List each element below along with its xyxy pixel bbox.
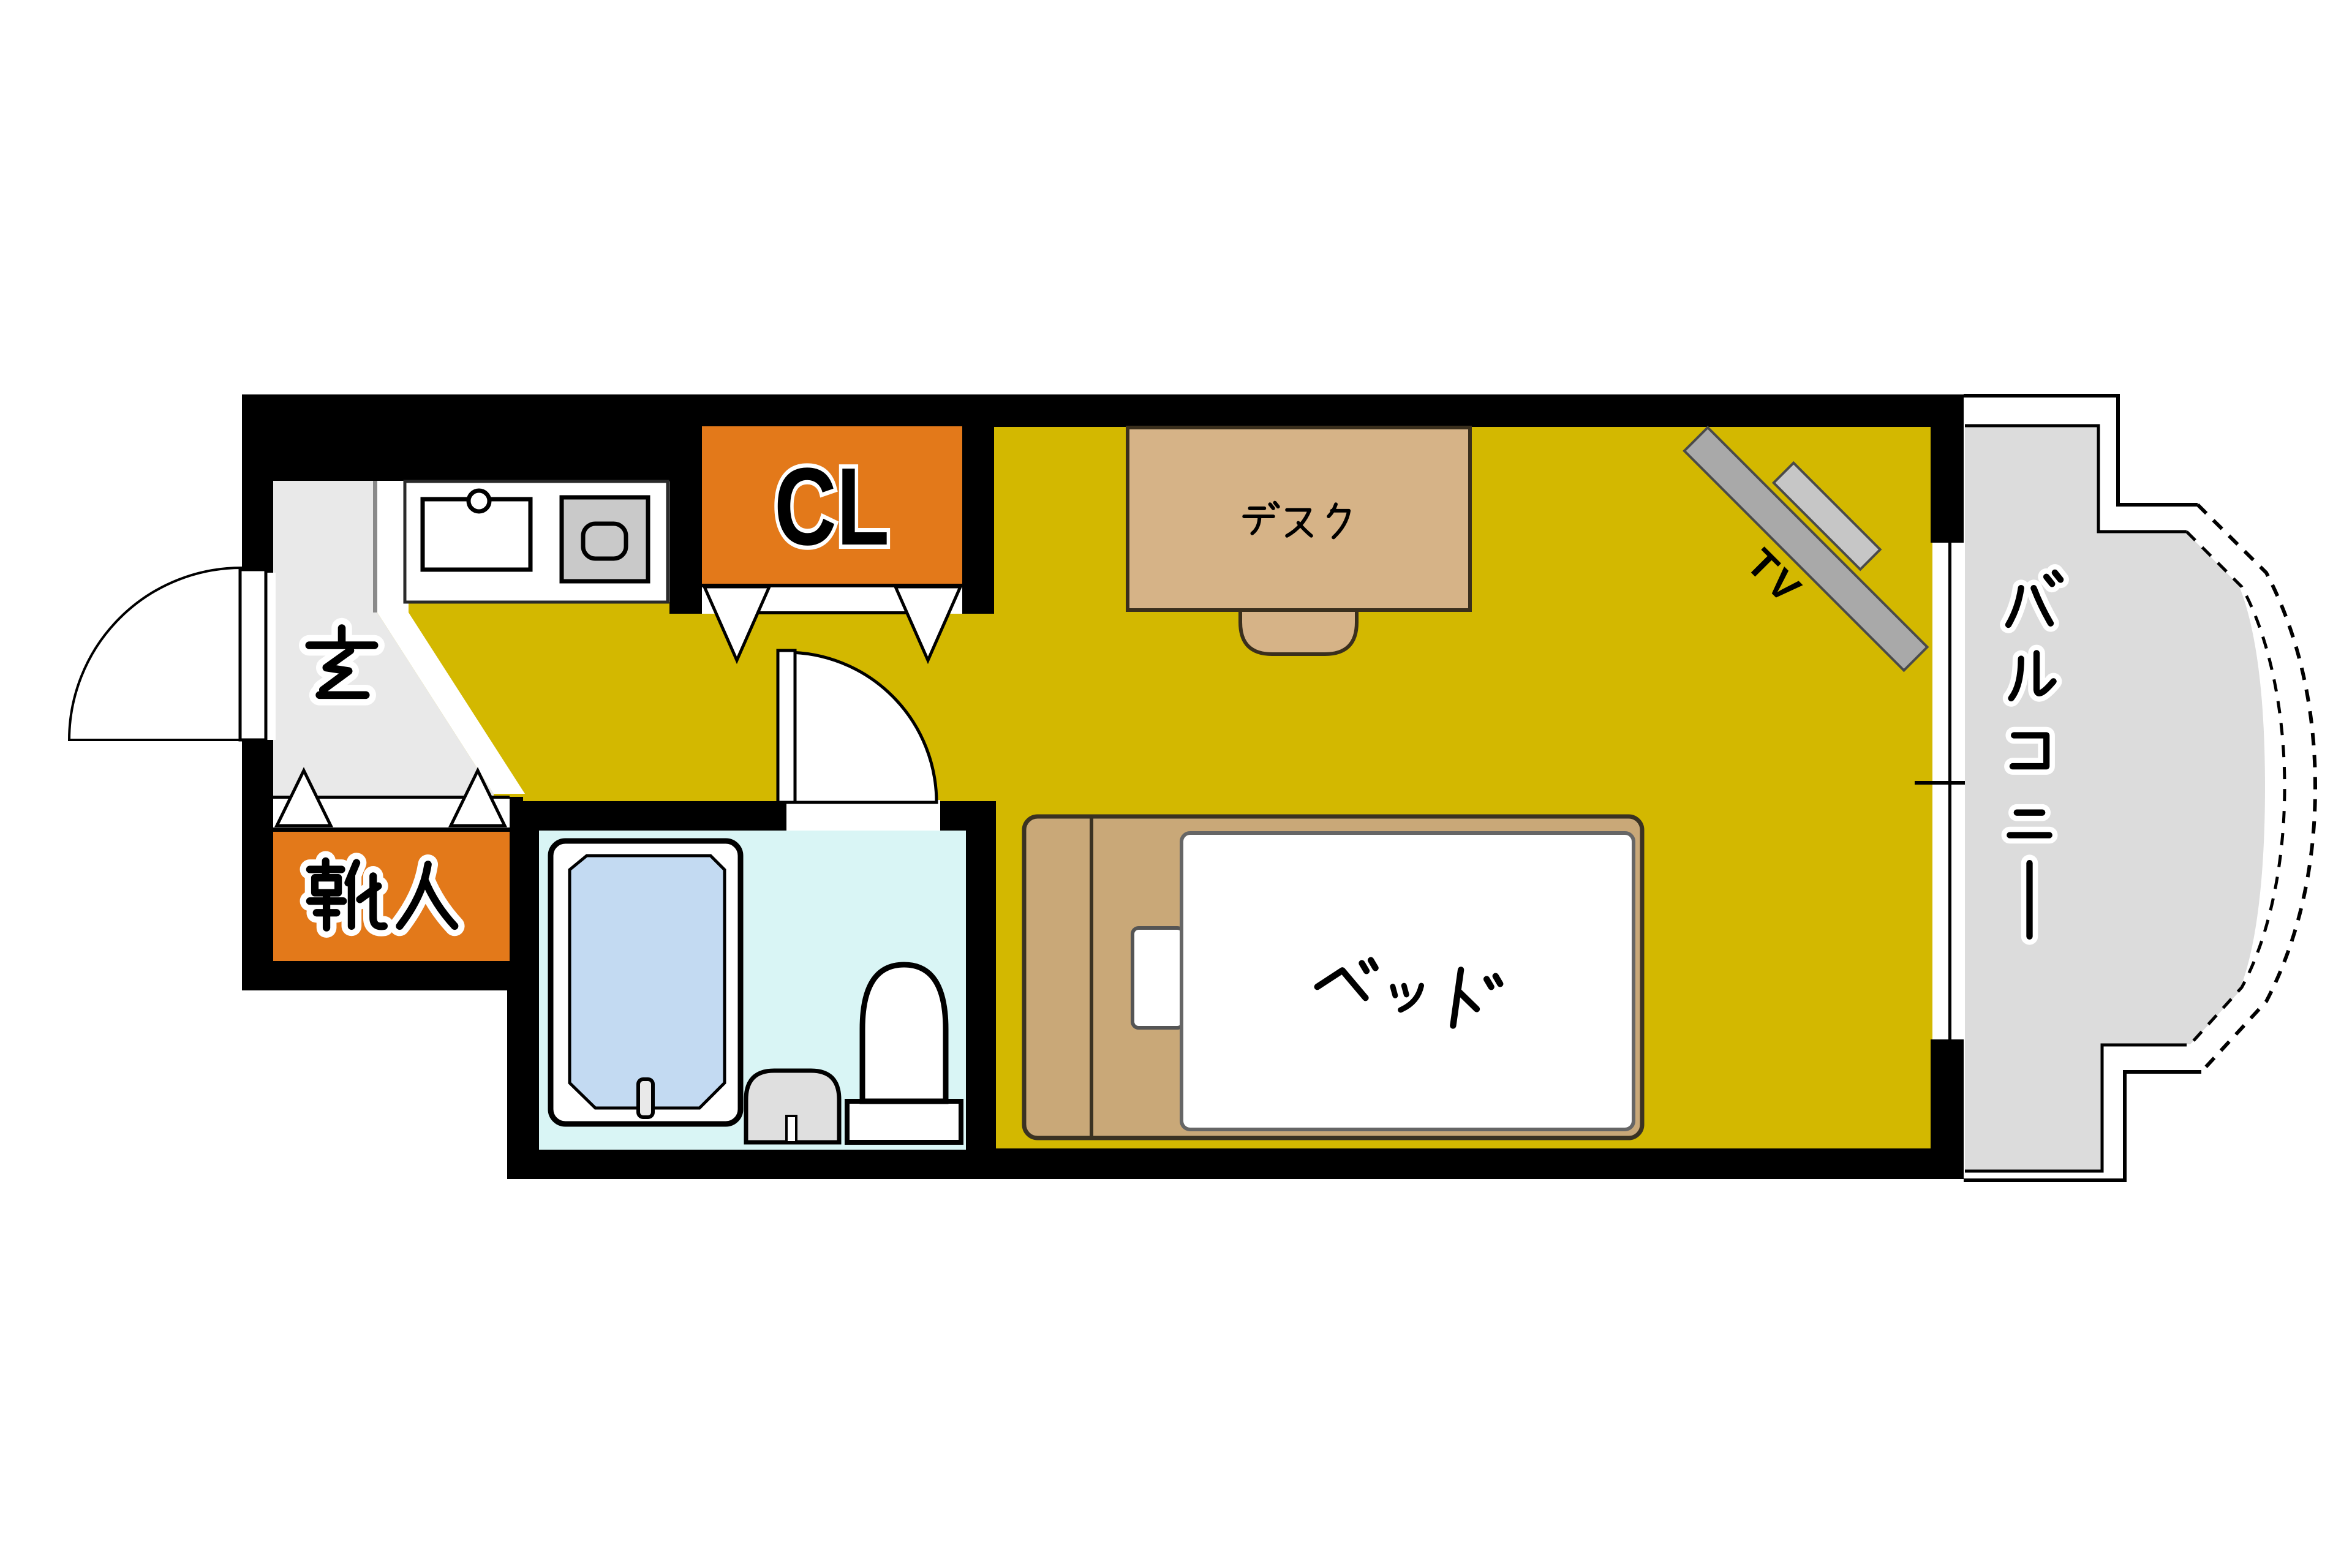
svg-text:CL: CL — [774, 445, 889, 568]
